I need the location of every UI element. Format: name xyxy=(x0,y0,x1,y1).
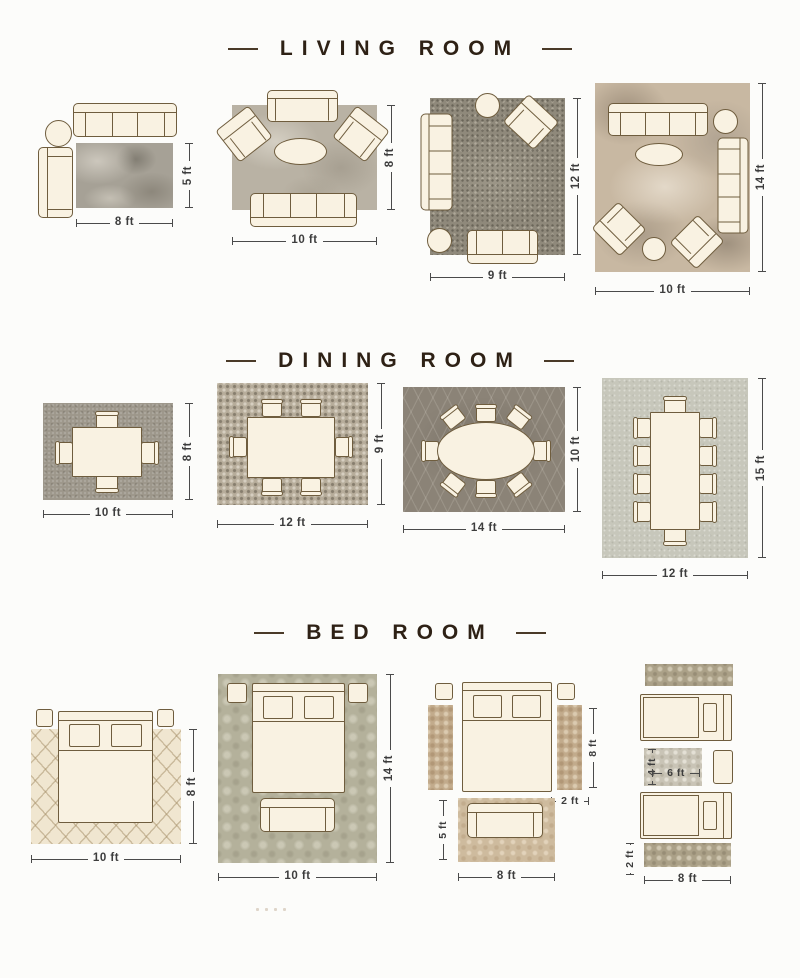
height-dimension: 10 ft xyxy=(570,387,584,512)
dimension-line xyxy=(139,223,173,224)
dimension-label: 9 ft xyxy=(488,271,507,283)
runner-height-dimension: 8 ft xyxy=(586,708,600,788)
dimension-label: 8 ft xyxy=(678,874,697,886)
width-dimension: 10 ft xyxy=(595,284,750,298)
dining-chair xyxy=(141,442,156,464)
dimension-line xyxy=(762,486,763,558)
dining-chair xyxy=(301,478,321,493)
dimension-line xyxy=(124,859,181,860)
dimension-line xyxy=(218,877,279,878)
watermark-dot xyxy=(256,908,259,911)
dimension-line xyxy=(762,83,763,159)
nightstand xyxy=(435,683,453,700)
height-dimension: 14 ft xyxy=(383,674,397,863)
section-title-bed: BED ROOM xyxy=(0,620,800,645)
dining-chair xyxy=(476,407,496,422)
nightstand xyxy=(557,683,575,700)
dimension-line xyxy=(311,524,368,525)
dimension-line xyxy=(189,403,190,437)
dimension-line xyxy=(126,514,173,515)
dimension-line xyxy=(381,459,382,505)
watermark-dots xyxy=(256,908,286,911)
width-dimension: 8 ft xyxy=(644,873,731,887)
dimension-line xyxy=(693,575,748,576)
width-dimension: 10 ft xyxy=(218,870,377,884)
watermark-dot xyxy=(283,908,286,911)
dimension-label: 5 ft xyxy=(183,166,195,185)
dimension-line xyxy=(512,277,565,278)
width-dimension: 10 ft xyxy=(232,234,377,248)
dimension-line xyxy=(630,873,631,875)
dimension-line xyxy=(189,190,190,208)
pillow xyxy=(69,724,100,747)
dimension-line xyxy=(189,466,190,500)
foot-rug-width-dimension: 8 ft xyxy=(458,870,555,884)
sofa xyxy=(73,103,177,137)
height-dimension: 5 ft xyxy=(182,143,196,208)
runner-rug xyxy=(557,705,582,790)
dimension-line xyxy=(381,383,382,429)
dimension-label: 10 ft xyxy=(93,853,119,865)
height-dimension: 8 ft xyxy=(186,729,200,844)
dimension-label: 14 ft xyxy=(756,164,768,190)
height-dimension: 15 ft xyxy=(755,378,769,558)
dimension-line xyxy=(76,223,110,224)
dimension-line xyxy=(390,674,391,750)
runner-rug xyxy=(428,705,453,790)
dimension-label: 2 ft xyxy=(561,796,579,807)
dining-chair xyxy=(301,402,321,417)
dimension-line xyxy=(391,172,392,210)
dimension-line xyxy=(232,241,286,242)
living-rug-8x5 xyxy=(76,143,173,208)
nightstand xyxy=(157,709,174,727)
section-title-text: LIVING ROOM xyxy=(280,36,520,61)
title-dash xyxy=(542,48,572,50)
sofa xyxy=(608,103,708,136)
dimension-line xyxy=(193,801,194,844)
dimension-line xyxy=(577,195,578,255)
dimension-label: 14 ft xyxy=(471,523,497,535)
rug-size-guide-infographic: LIVING ROOM 8 ft 5 ft 10 ft 8 ft 9 ft 12… xyxy=(0,0,800,978)
watermark-dot xyxy=(274,908,277,911)
dimension-line xyxy=(690,773,700,774)
width-dimension: 10 ft xyxy=(43,507,173,521)
dining-chair xyxy=(699,418,714,438)
dimension-label: 12 ft xyxy=(662,569,688,581)
dimension-line xyxy=(390,787,391,863)
title-dash xyxy=(516,632,546,634)
height-dimension: 8 ft xyxy=(384,105,398,210)
dining-chair xyxy=(636,418,651,438)
dimension-line xyxy=(702,880,731,881)
dimension-line xyxy=(762,196,763,272)
dimension-line xyxy=(602,575,657,576)
dimension-label: 8 ft xyxy=(187,777,199,796)
dimension-label: 12 ft xyxy=(571,163,583,189)
dining-chair xyxy=(262,478,282,493)
foot-rug-height-dimension: 5 ft xyxy=(436,800,450,860)
round-side-table xyxy=(427,228,452,253)
dimension-line xyxy=(577,387,578,431)
pillow xyxy=(263,696,293,719)
nightstand xyxy=(348,683,368,703)
dimension-line xyxy=(652,749,653,753)
bench xyxy=(467,803,543,838)
dimension-line xyxy=(193,729,194,772)
pillow xyxy=(111,724,142,747)
bench xyxy=(260,798,335,832)
dimension-line xyxy=(652,781,653,785)
dimension-label: 10 ft xyxy=(659,285,685,297)
title-dash xyxy=(254,632,284,634)
dimension-line xyxy=(316,877,377,878)
dining-chair xyxy=(636,446,651,466)
nightstand xyxy=(713,750,733,784)
dimension-line xyxy=(521,877,555,878)
pillow xyxy=(304,696,334,719)
width-dimension: 12 ft xyxy=(217,517,368,531)
dimension-line xyxy=(593,708,594,734)
mid-rug-width-dimension: 6 ft xyxy=(652,766,700,780)
dining-chair xyxy=(636,502,651,522)
dimension-line xyxy=(189,143,190,161)
title-dash xyxy=(228,48,258,50)
pillow xyxy=(473,695,502,718)
section-title-text: DINING ROOM xyxy=(278,348,522,373)
mattress xyxy=(643,795,699,836)
round-side-table xyxy=(642,237,666,261)
dimension-line xyxy=(430,277,483,278)
dimension-label: 14 ft xyxy=(384,755,396,781)
height-dimension: 12 ft xyxy=(570,98,584,255)
dining-table xyxy=(247,417,335,478)
dimension-label: 2 ft xyxy=(625,850,636,868)
round-side-table xyxy=(713,109,738,134)
round-side-table xyxy=(475,93,500,118)
title-dash xyxy=(226,360,256,362)
dimension-label: 10 ft xyxy=(284,871,310,883)
section-title-dining: DINING ROOM xyxy=(0,348,800,373)
dimension-label: 12 ft xyxy=(279,518,305,530)
loveseat xyxy=(267,90,338,122)
dimension-label: 8 ft xyxy=(588,739,599,757)
pillow xyxy=(703,703,717,733)
dimension-line xyxy=(443,844,444,860)
section-title-living: LIVING ROOM xyxy=(0,36,800,61)
dining-chair xyxy=(58,442,73,464)
sofa xyxy=(718,138,749,234)
dimension-line xyxy=(323,241,377,242)
dining-chair xyxy=(533,441,548,461)
dimension-line xyxy=(584,801,589,802)
nightstand xyxy=(227,683,247,703)
twin-bed xyxy=(640,694,732,741)
bed xyxy=(462,682,552,792)
watermark-dot xyxy=(265,908,268,911)
loveseat xyxy=(467,230,538,264)
width-dimension: 10 ft xyxy=(31,852,181,866)
width-dimension: 12 ft xyxy=(602,568,748,582)
twin-bed xyxy=(640,792,732,839)
dimension-line xyxy=(691,291,750,292)
dimension-label: 8 ft xyxy=(183,442,195,461)
width-dimension: 8 ft xyxy=(76,216,173,230)
round-side-table xyxy=(45,120,72,147)
dimension-label: 10 ft xyxy=(571,436,583,462)
chaise-sofa xyxy=(38,147,73,218)
pillow xyxy=(512,695,541,718)
dimension-label: 15 ft xyxy=(756,455,768,481)
sofa xyxy=(421,114,453,211)
dining-table xyxy=(650,412,700,530)
dimension-line xyxy=(630,843,631,845)
height-dimension: 14 ft xyxy=(755,83,769,272)
dining-table xyxy=(72,427,142,477)
dimension-label: 8 ft xyxy=(385,148,397,167)
dimension-label: 10 ft xyxy=(291,235,317,247)
dining-chair xyxy=(699,502,714,522)
width-dimension: 14 ft xyxy=(403,522,565,536)
width-dimension: 9 ft xyxy=(430,270,565,284)
dimension-label: 6 ft xyxy=(667,768,685,779)
dimension-line xyxy=(577,468,578,512)
height-dimension: 8 ft xyxy=(182,403,196,500)
dining-chair xyxy=(699,474,714,494)
dining-chair xyxy=(335,437,350,457)
nightstand xyxy=(36,709,53,727)
sofa xyxy=(250,193,357,227)
oval-coffee-table xyxy=(274,138,327,165)
runner-width-dimension: 2 ft xyxy=(551,794,589,808)
dining-chair xyxy=(232,437,247,457)
dining-chair xyxy=(636,474,651,494)
dimension-label: 8 ft xyxy=(497,871,516,883)
bed xyxy=(252,683,345,793)
dimension-label: 10 ft xyxy=(95,508,121,520)
dimension-line xyxy=(577,98,578,158)
dimension-line xyxy=(217,524,274,525)
runner-rug xyxy=(644,843,731,867)
dimension-line xyxy=(595,291,654,292)
bed xyxy=(58,711,153,823)
dimension-line xyxy=(762,378,763,450)
dimension-line xyxy=(31,859,88,860)
height-dimension: 9 ft xyxy=(374,383,388,505)
dimension-line xyxy=(644,880,673,881)
oval-coffee-table xyxy=(635,143,683,166)
runner-rug xyxy=(645,664,733,686)
dimension-line xyxy=(502,529,565,530)
dimension-line xyxy=(593,762,594,788)
runner-width-dimension: 2 ft xyxy=(623,843,637,867)
dimension-line xyxy=(43,514,90,515)
title-dash xyxy=(544,360,574,362)
mattress xyxy=(643,697,699,738)
dining-chair xyxy=(476,480,496,495)
dining-chair xyxy=(96,475,118,490)
dimension-line xyxy=(458,877,492,878)
dimension-line xyxy=(391,105,392,143)
pillow xyxy=(703,801,717,831)
dining-chair xyxy=(699,446,714,466)
dimension-line xyxy=(443,800,444,816)
dimension-label: 9 ft xyxy=(375,434,387,453)
section-title-text: BED ROOM xyxy=(306,620,494,645)
dimension-label: 5 ft xyxy=(438,821,449,839)
dimension-line xyxy=(652,773,662,774)
dining-chair xyxy=(262,402,282,417)
dimension-line xyxy=(403,529,466,530)
dining-chair xyxy=(664,528,686,543)
oval-dining-table xyxy=(437,422,535,480)
dimension-label: 8 ft xyxy=(115,217,134,229)
